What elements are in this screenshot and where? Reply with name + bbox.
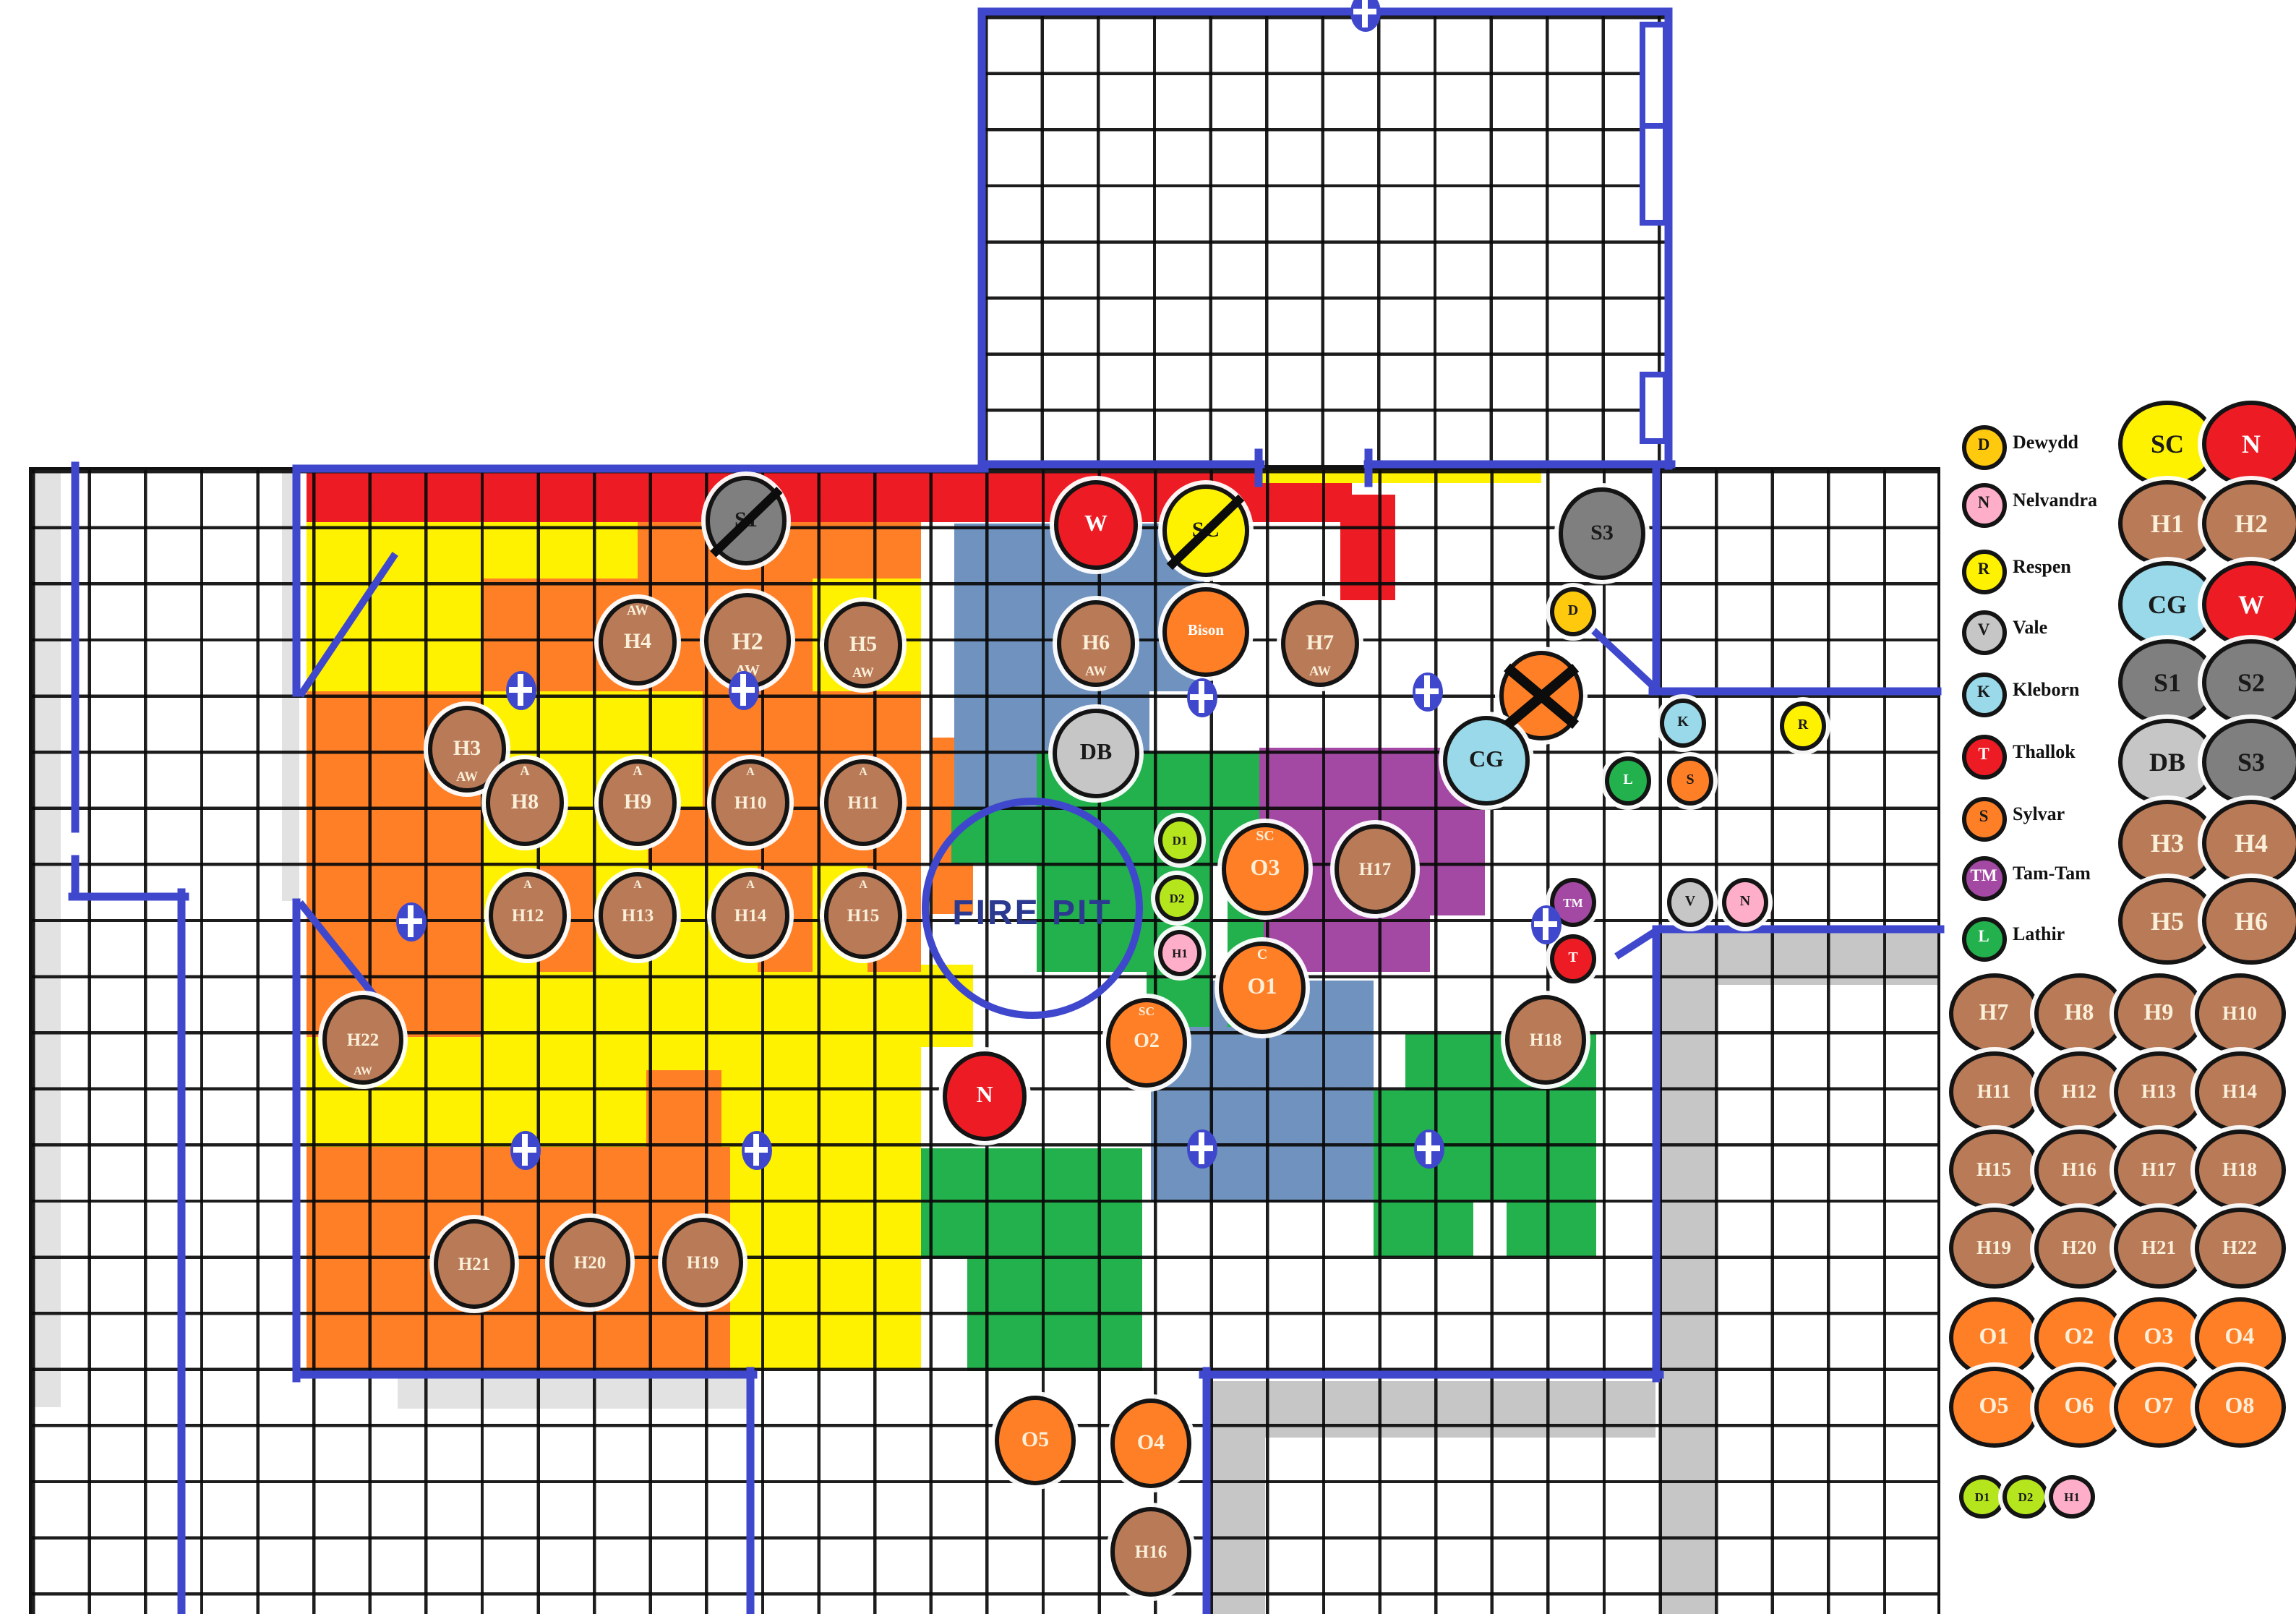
token-label: H13 [2141,1083,2176,1102]
map-stage: FIRE PIT S1WSCS3H4AWH2AWH5AWH6AWBisonH7A… [0,0,2296,1614]
palette-token-pal-H20[interactable]: H20 [2034,1208,2125,1289]
token-label: H6 [2235,908,2268,934]
token-label: H18 [2222,1161,2257,1180]
token-label: R [1978,563,1990,580]
palette-token-pal-H12[interactable]: H12 [2034,1051,2125,1132]
token-label: H12 [2062,1083,2096,1102]
legend-key-legend-Tam-Tam[interactable]: TM [1961,855,2006,900]
palette-token-pal-H17[interactable]: H17 [2113,1130,2204,1210]
palette-token-pal-O8[interactable]: O8 [2194,1367,2285,1448]
legend-key-legend-Sylvar[interactable]: S [1961,796,2006,841]
token-label: S [1979,811,1989,827]
token-label: O3 [2144,1326,2174,1349]
token-label: H19 [1976,1239,2011,1258]
token-label: N [1978,497,1990,513]
token-label: H14 [2222,1083,2257,1102]
token-label: H22 [2222,1239,2257,1258]
token-label: H10 [2222,1004,2257,1024]
palette-token-pal-H16[interactable]: H16 [2034,1130,2125,1210]
legend-key-legend-Thallok[interactable]: T [1961,734,2006,779]
token-label: D2 [2018,1491,2034,1503]
legend-label-nelvandra: Nelvandra [2013,489,2097,512]
token-label: SC [2151,431,2184,457]
token-label: H8 [2065,1002,2094,1025]
palette-token-pal-H19[interactable]: H19 [1948,1208,2039,1289]
token-label: H5 [2151,908,2184,934]
palette-token-pal-H14[interactable]: H14 [2194,1051,2285,1132]
token-label: V [1978,624,1990,641]
legend-label-lathir: Lathir [2013,923,2065,946]
token-label: L [1978,931,1989,947]
token-label: H4 [2235,830,2268,856]
palette-token-pal-O7[interactable]: O7 [2113,1367,2204,1448]
palette-token-pal-H15[interactable]: H15 [1948,1130,2039,1210]
token-label: H11 [1977,1083,2011,1102]
legend-key-legend-Respen[interactable]: R [1961,549,2006,594]
token-label: TM [1970,870,1997,887]
side-panel: DDewyddNNelvandraRRespenVValeKKlebornTTh… [0,0,2296,1614]
legend-label-dewydd: Dewydd [2013,431,2078,454]
palette-token-pal-H13[interactable]: H13 [2113,1051,2204,1132]
palette-token-pal-H9[interactable]: H9 [2113,973,2204,1054]
palette-token-pal-H21[interactable]: H21 [2113,1208,2204,1289]
legend-key-legend-Dewydd[interactable]: D [1961,424,2006,469]
palette-token-pal-H8[interactable]: H8 [2034,973,2125,1054]
token-label: O6 [2065,1396,2094,1419]
token-label: H21 [2141,1239,2176,1258]
token-label: O1 [1979,1326,2009,1349]
token-label: W [2238,592,2264,618]
palette-token-pal-H7[interactable]: H7 [1948,973,2039,1054]
legend-key-legend-Vale[interactable]: V [1961,610,2006,654]
legend-key-legend-Nelvandra[interactable]: N [1961,482,2006,527]
legend-label-tam-tam: Tam-Tam [2013,862,2091,885]
palette-token-pal-H11[interactable]: H11 [1948,1051,2039,1132]
token-label: O7 [2144,1396,2174,1419]
palette-token-pal-small-D1[interactable]: D1 [1959,1475,2005,1519]
legend-label-vale: Vale [2013,616,2047,639]
token-label: H17 [2141,1161,2176,1180]
palette-token-pal-O6[interactable]: O6 [2034,1367,2125,1448]
legend-label-thallok: Thallok [2013,740,2076,764]
legend-label-kleborn: Kleborn [2013,678,2079,701]
token-label: O5 [1979,1396,2009,1419]
token-label: S1 [2154,670,2181,696]
palette-token-pal-S3[interactable]: S3 [2202,719,2296,806]
token-label: S3 [2237,749,2265,775]
token-label: H3 [2151,830,2184,856]
token-label: H7 [1979,1002,2009,1025]
palette-token-pal-H6[interactable]: H6 [2202,878,2296,965]
battle-map-screenshot: FIRE PIT S1WSCS3H4AWH2AWH5AWH6AWBisonH7A… [0,0,2296,1614]
palette-token-pal-S2[interactable]: S2 [2202,639,2296,726]
token-label: H2 [2235,511,2268,537]
token-label: K [1977,686,1990,703]
token-label: T [1978,748,1989,765]
token-label: O2 [2065,1326,2094,1349]
legend-label-sylvar: Sylvar [2013,803,2065,826]
token-label: DB [2149,749,2185,775]
palette-token-pal-H10[interactable]: H10 [2194,973,2285,1054]
palette-token-pal-N[interactable]: N [2202,401,2296,487]
token-label: D1 [1975,1491,1990,1503]
token-label: H16 [2062,1161,2096,1180]
legend-label-respen: Respen [2013,555,2071,578]
palette-token-pal-H2[interactable]: H2 [2202,480,2296,567]
token-label: N [2242,431,2261,457]
palette-token-pal-W[interactable]: W [2202,561,2296,648]
token-label: O4 [2225,1326,2255,1349]
token-label: H1 [2151,511,2184,537]
legend-key-legend-Kleborn[interactable]: K [1961,672,2006,717]
token-label: O8 [2225,1396,2255,1419]
palette-token-pal-small-D2[interactable]: D2 [2002,1475,2049,1519]
token-label: D [1978,439,1990,456]
palette-token-pal-H4[interactable]: H4 [2202,800,2296,887]
palette-token-pal-H18[interactable]: H18 [2194,1130,2285,1210]
token-label: H1 [2064,1491,2080,1503]
token-label: H9 [2144,1002,2174,1025]
token-label: H15 [1976,1161,2011,1180]
palette-token-pal-small-H1[interactable]: H1 [2049,1475,2095,1519]
legend-key-legend-Lathir[interactable]: L [1961,916,2006,961]
palette-token-pal-O5[interactable]: O5 [1948,1367,2039,1448]
token-label: CG [2148,592,2187,618]
token-label: S2 [2237,670,2265,696]
palette-token-pal-H22[interactable]: H22 [2194,1208,2285,1289]
token-label: H20 [2062,1239,2096,1258]
